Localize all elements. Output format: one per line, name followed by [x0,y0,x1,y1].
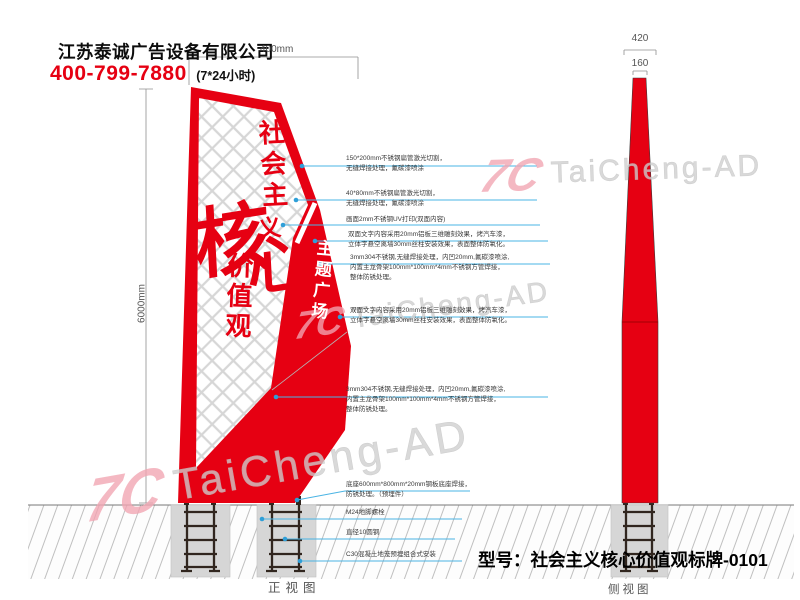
annotation-3d-letters-2: 双面文字内容采用20mm铝板三维雕刻效果，烤汽车漆， 立体字悬空离墙30mm丝柱… [350,306,565,326]
annotation-uv-print: 画面2mm不锈钢UV打印(双面内容) [346,215,561,225]
annotation-steel-304-1: 3mm304不锈钢,无缝焊接处理，内凹20mm,氟碳漆喷涂, 内置主龙骨架100… [350,253,565,283]
hotline-number: 400-799-7880 [50,62,187,85]
annotation-flat-tube-40: 40*80mm不锈钢扁管激光切割， 无缝焊接处理，氟碳漆喷涂 [346,189,561,209]
design-drawing-canvas: 7C TaiCheng-AD 7C TaiCheng-AD 7C TaiChen… [0,0,800,600]
sign-side-view-pole [622,78,658,503]
annotation-3d-letters-1: 双面文字内容采用20mm铝板三维雕刻效果，烤汽车漆， 立体字悬空离墙30mm丝柱… [348,230,563,250]
hotline-row: 400-799-7880 (7*24小时) [50,62,255,86]
model-number: 型号：社会主义核心价值观标牌-0101 [478,547,768,572]
annotation-flat-tube-150: 150*200mm不锈钢扁管激光切割， 无缝焊接处理，氟碳漆喷涂 [346,154,561,174]
dim-height-label: 6000mm [137,274,148,334]
annotation-anchor-bolt: M24地脚螺栓 [346,508,561,518]
annotation-steel-304-2: 3mm304不锈钢,无缝焊接处理，内凹20mm,氟碳漆喷涂, 内置主龙骨架100… [346,385,561,415]
dim-top-width-label: 400mm [260,44,293,55]
annotation-base-plate: 底座600mm*800mm*20mm钢板底座焊接， 防锈处理。（预埋件） [346,480,561,500]
slogan-jia-zhi-guan: 价值观 [218,251,258,342]
hotline-hours: (7*24小时) [196,69,255,83]
dim-side-top-label: 160 [620,58,660,69]
dim-side-base-label: 420 [620,33,660,44]
front-view-label: 正视图 [268,577,321,596]
company-name: 江苏泰诚广告设备有限公司 [58,39,274,64]
side-view-label: 侧视图 [608,581,652,597]
annotation-round-steel: 直径10圆钢 [346,528,561,538]
